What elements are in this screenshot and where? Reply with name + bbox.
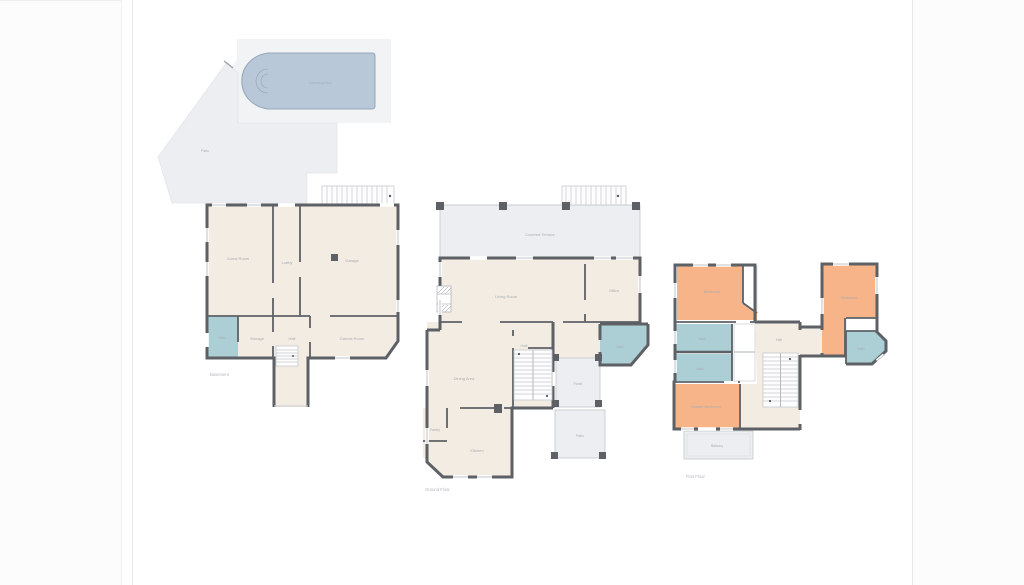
bath-2-label: Bath [697, 367, 704, 371]
lobby-label: Lobby [282, 260, 293, 265]
bedroom2-closet [846, 318, 877, 331]
hall-label: Hall [289, 336, 296, 341]
master-bedroom-label: Master Bedroom [691, 404, 721, 409]
office-label: Office [609, 288, 620, 293]
room-bath-2-fill [675, 354, 732, 381]
games-room-label: Games Room [340, 336, 365, 341]
basement-floor-fill [207, 205, 398, 407]
patio-label: Patio [576, 434, 584, 438]
kitchen-label: Kitchen [470, 448, 483, 453]
bath-label: Bath [219, 336, 226, 340]
pantry-label: Pantry [430, 428, 440, 432]
floor-plan-first: Bedroom Bath Bath Master Bedroom Balcony… [674, 264, 886, 479]
floor-title-ground: Ground Floor [425, 487, 450, 492]
bedroom-2-label: Bedroom [841, 295, 858, 300]
kitchen-floor-fill [423, 408, 512, 477]
bath-label: Bath [617, 345, 624, 349]
room-bath-fill [600, 324, 648, 365]
living-room-label: Living Room [495, 294, 518, 299]
corridor-floor-fill [553, 322, 600, 358]
storage-label: Storage [250, 336, 265, 341]
covered-terrace-label: Covered Terrace [525, 232, 555, 237]
floorplan-canvas: Swimming Pool Patio Guest Room Lobby Gar… [0, 0, 1024, 585]
dining-area-label: Dining Area [454, 376, 475, 381]
hall-label: Hall [521, 343, 528, 348]
bedroom-1-label: Bedroom [704, 289, 721, 294]
basement-stairs [276, 346, 298, 366]
first-floor-stairs [763, 353, 798, 407]
hall-closets [734, 324, 755, 381]
porch-label: Porch [574, 382, 583, 386]
balcony-label: Balcony [711, 444, 723, 448]
bath-3-label: Bath [858, 347, 865, 351]
swimming-pool-label: Swimming Pool [308, 81, 332, 85]
exterior-stairs [322, 186, 394, 205]
floor-plan-basement: Swimming Pool Patio Guest Room Lobby Gar… [158, 39, 398, 407]
kitchen-pillar [494, 404, 502, 413]
ground-floor-stairs [514, 350, 552, 400]
guest-room-label: Guest Room [227, 256, 250, 261]
garage-label: Garage [345, 258, 359, 263]
connector-floor-fill [800, 327, 822, 356]
floor-title-first: First Floor [686, 474, 705, 479]
floor-title-basement: Basement [210, 372, 230, 377]
patio-label: Patio [201, 149, 209, 153]
floor-plan-ground: Covered Terrace Living Room Office Hall … [423, 186, 648, 492]
exterior-stairs [562, 186, 626, 205]
garage-pillar [331, 254, 338, 261]
bath-1-label: Bath [699, 337, 706, 341]
floorplan-page: { "page": { "background": "#ffffff", "gu… [0, 0, 1024, 585]
hall-label: Hall [776, 338, 782, 342]
